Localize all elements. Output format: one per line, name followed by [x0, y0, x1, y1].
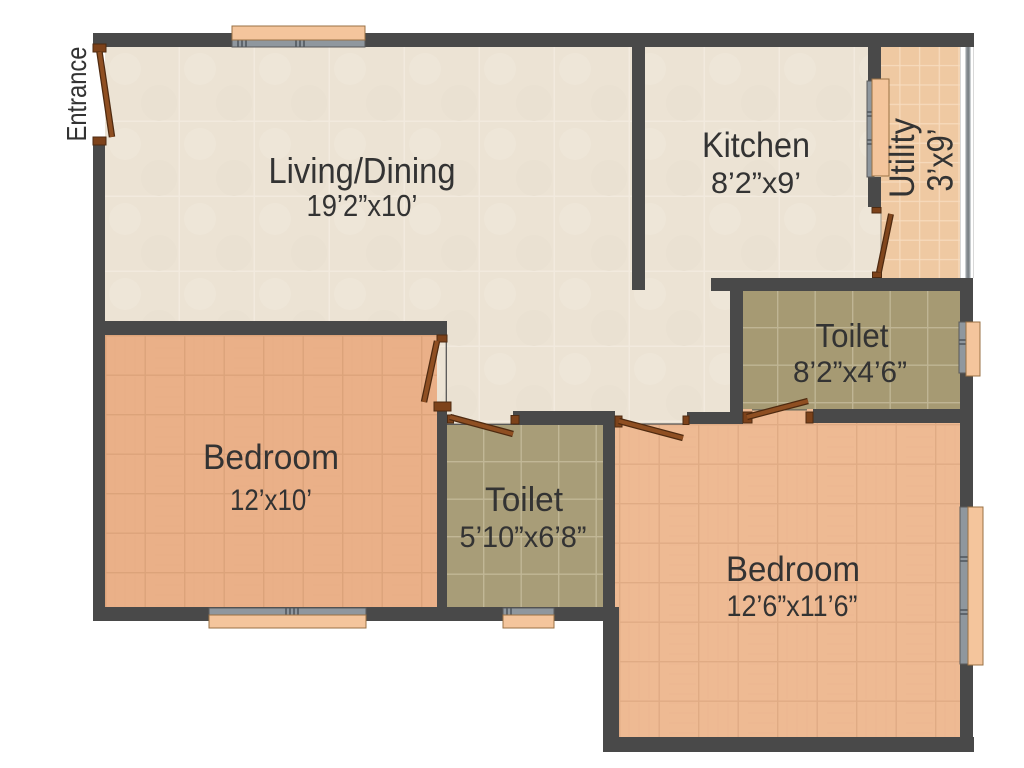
svg-text:Living/Dining: Living/Dining: [269, 150, 456, 191]
svg-text:8’2”x4’6”: 8’2”x4’6”: [793, 356, 907, 389]
svg-text:12’x10’: 12’x10’: [230, 484, 312, 517]
svg-text:5’10”x6’8”: 5’10”x6’8”: [460, 521, 587, 554]
svg-text:Bedroom: Bedroom: [726, 550, 860, 589]
svg-text:12’6”x11’6”: 12’6”x11’6”: [727, 590, 858, 623]
svg-text:Utility: Utility: [883, 118, 922, 198]
svg-text:Bedroom: Bedroom: [203, 438, 339, 477]
svg-text:8’2”x9’: 8’2”x9’: [711, 167, 801, 200]
svg-text:Kitchen: Kitchen: [702, 126, 810, 165]
svg-text:Toilet: Toilet: [485, 481, 564, 519]
svg-text:3’x9’: 3’x9’: [920, 129, 961, 192]
svg-text:Toilet: Toilet: [816, 317, 889, 354]
svg-text:19’2”x10’: 19’2”x10’: [307, 188, 418, 223]
svg-text:Entrance: Entrance: [61, 47, 92, 142]
